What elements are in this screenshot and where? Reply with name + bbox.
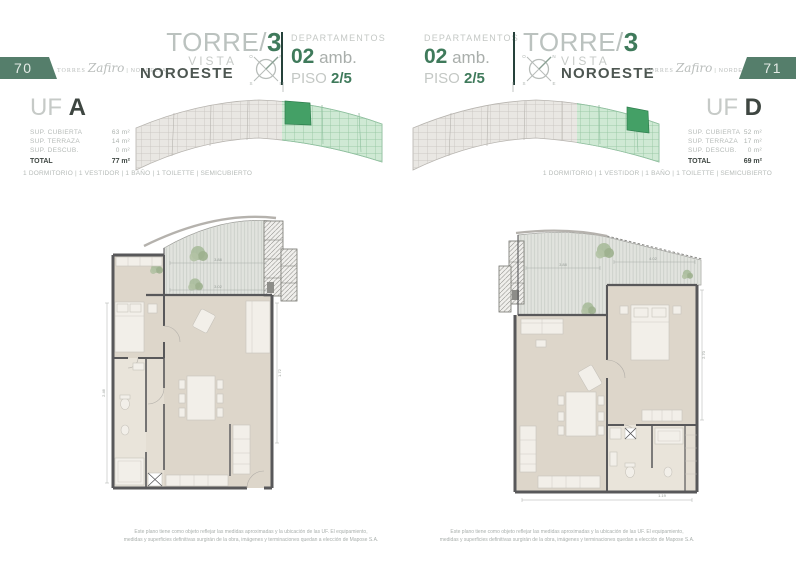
dimension-label: 3.88	[559, 262, 568, 267]
disclaimer-line2: medidas y superficies definitivas surgir…	[105, 537, 397, 545]
chair	[217, 380, 223, 389]
compass-o: O	[522, 54, 526, 59]
washer	[610, 428, 621, 439]
dining-table	[187, 376, 215, 420]
disclaimer-line2: medidas y superficies definitivas surgir…	[422, 537, 712, 545]
chair	[598, 412, 604, 421]
dimension-label: 3.02	[214, 284, 223, 289]
amb-number: 02	[424, 45, 447, 68]
chair	[217, 408, 223, 417]
surface-label: SUP. CUBIERTA	[688, 130, 740, 137]
total-label: TOTAL	[688, 158, 711, 165]
shower	[655, 428, 683, 444]
surface-row: SUP. CUBIERTA63 m²	[30, 130, 130, 137]
chair	[217, 394, 223, 403]
uf-letter: A	[69, 94, 86, 121]
chair	[558, 412, 564, 421]
page-number-text: 70	[14, 60, 33, 76]
surface-row: SUP. DESCUB.0 m²	[30, 148, 130, 155]
brand-prefix: TORRES	[645, 68, 674, 74]
total-value: 77 m²	[112, 158, 130, 165]
total-row: TOTAL69 m²	[688, 158, 762, 165]
dept-amb: 02 amb.	[424, 46, 519, 67]
highlighted-unit	[285, 101, 311, 125]
hall-floor	[146, 358, 164, 488]
floor-plan-uf-a: 3.88 3.02 2.46 1.72	[100, 208, 305, 520]
toilet	[121, 399, 130, 410]
surface-row: SUP. TERRAZA17 m²	[688, 139, 762, 146]
shower	[115, 458, 144, 485]
cabinet	[246, 301, 270, 353]
surface-row: SUP. TERRAZA14 m²	[30, 139, 130, 146]
unit-title-right: UF D	[688, 96, 762, 120]
surface-value: 0 m²	[116, 148, 130, 155]
dept-label: DEPARTAMENTOS	[291, 33, 386, 43]
total-value: 69 m²	[744, 158, 762, 165]
sink	[610, 452, 617, 466]
kitchen-unit	[520, 426, 536, 472]
toilet	[626, 467, 635, 478]
bidet	[121, 425, 129, 435]
chair	[179, 380, 185, 389]
compass-n: N	[552, 54, 555, 59]
amb-text: amb.	[319, 48, 357, 67]
chair	[179, 408, 185, 417]
amenities-right: 1 DORMITORIO | 1 VESTIDOR | 1 BAÑO | 1 T…	[540, 170, 772, 177]
kitchen-unit	[233, 425, 250, 474]
brand-name: Zafiro	[88, 62, 124, 74]
kitchen-counter	[166, 475, 228, 486]
toilet	[664, 467, 672, 477]
kitchen-counter	[538, 476, 600, 488]
total-label: TOTAL	[30, 158, 53, 165]
disclaimer-line1: Este plano tiene como objeto reflejar la…	[105, 529, 397, 537]
compass-o: O	[249, 54, 253, 59]
page-number-left: 70	[0, 57, 57, 79]
dept-amb: 02 amb.	[291, 46, 386, 67]
dimension-label: 1.72	[277, 368, 282, 377]
surface-value: 14 m²	[112, 139, 130, 146]
header-divider-right	[513, 32, 515, 85]
tower-number: 3	[624, 27, 639, 57]
pillow	[130, 304, 141, 312]
floor-plan-uf-d: 4.02 3.88 2.70 1.19	[492, 220, 707, 507]
sink	[133, 363, 144, 370]
amb-number: 02	[291, 45, 314, 68]
brochure-spread: 70 TORRES Zafiro | NORDELTA TORRE/3 VIST…	[0, 0, 796, 562]
highlighted-unit	[627, 107, 649, 133]
surface-table-right: SUP. CUBIERTA52 m² SUP. TERRAZA17 m² SUP…	[688, 128, 762, 165]
surface-value: 52 m²	[744, 130, 762, 137]
dimension-label: 3.88	[214, 257, 223, 262]
dimension-label: 2.70	[701, 350, 706, 359]
unit-title-left: UF A	[30, 96, 86, 120]
chair	[598, 396, 604, 405]
coffee-table	[536, 340, 546, 347]
header-divider-left	[281, 32, 283, 85]
orientation-left: NOROESTE	[140, 66, 234, 81]
page-number-right: 71	[739, 57, 796, 79]
surface-row: SUP. DESCUB.0 m²	[688, 148, 762, 155]
dining-table	[566, 392, 596, 436]
surface-label: SUP. TERRAZA	[688, 139, 738, 146]
dept-block-right: DEPARTAMENTOS 02 amb. PISO 2/5	[424, 33, 519, 86]
brand-prefix: TORRES	[57, 68, 86, 74]
uf-label: UF	[706, 94, 738, 121]
amenities-left: 1 DORMITORIO | 1 VESTIDOR | 1 BAÑO | 1 T…	[23, 170, 252, 177]
chair	[558, 426, 564, 435]
dimension-label: 1.19	[658, 493, 667, 498]
surface-label: SUP. TERRAZA	[30, 139, 80, 146]
surface-label: SUP. DESCUB.	[30, 148, 79, 155]
disclaimer-left: Este plano tiene como objeto reflejar la…	[105, 529, 397, 545]
brand-logo-right: TORRES Zafiro | NORDELTA	[645, 62, 754, 74]
chair	[179, 394, 185, 403]
chair	[558, 396, 564, 405]
surface-value: 17 m²	[744, 139, 762, 146]
orientation-right: NOROESTE	[561, 66, 655, 81]
louver-screen	[499, 241, 524, 312]
louver-screen	[264, 221, 297, 301]
uf-label: UF	[30, 94, 62, 121]
surface-table-left: SUP. CUBIERTA63 m² SUP. TERRAZA14 m² SUP…	[30, 128, 130, 165]
disclaimer-line1: Este plano tiene como objeto reflejar la…	[422, 529, 712, 537]
dimension-label: 4.02	[649, 256, 658, 261]
disclaimer-right: Este plano tiene como objeto reflejar la…	[422, 529, 712, 545]
dept-label: DEPARTAMENTOS	[424, 33, 519, 43]
surface-value: 0 m²	[748, 148, 762, 155]
dept-block-left: DEPARTAMENTOS 02 amb. PISO 2/5	[291, 33, 386, 86]
amb-text: amb.	[452, 48, 490, 67]
surface-value: 63 m²	[112, 130, 130, 137]
pillow	[634, 308, 648, 317]
wardrobe	[116, 257, 162, 266]
site-plan-left	[128, 80, 390, 177]
site-plan-right	[405, 80, 667, 177]
page-number-text: 71	[763, 60, 782, 76]
pillow	[652, 308, 666, 317]
total-row: TOTAL77 m²	[30, 158, 130, 165]
surface-label: SUP. CUBIERTA	[30, 130, 82, 137]
brand-name: Zafiro	[676, 62, 712, 74]
uf-letter: D	[745, 94, 762, 121]
chair	[598, 426, 604, 435]
dimension-label: 2.46	[101, 388, 106, 397]
nightstand	[673, 306, 681, 314]
nightstand	[620, 306, 628, 314]
nightstand	[148, 304, 157, 313]
surface-row: SUP. CUBIERTA52 m²	[688, 130, 762, 137]
pillow	[117, 304, 128, 312]
surface-label: SUP. DESCUB.	[688, 148, 737, 155]
